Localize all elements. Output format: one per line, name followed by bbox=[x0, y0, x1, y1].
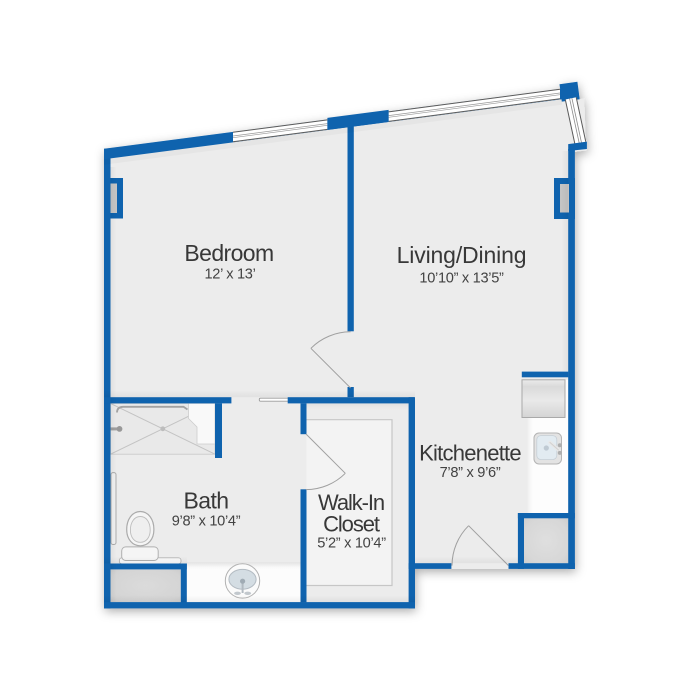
svg-text:Bedroom: Bedroom bbox=[184, 240, 273, 266]
svg-text:Bath: Bath bbox=[184, 488, 229, 514]
svg-text:12’ x 13’: 12’ x 13’ bbox=[204, 267, 255, 283]
svg-text:10’10” x 13’5”: 10’10” x 13’5” bbox=[419, 271, 504, 287]
svg-text:5’2” x 10’4”: 5’2” x 10’4” bbox=[317, 536, 386, 552]
svg-text:Kitchenette: Kitchenette bbox=[419, 441, 521, 466]
svg-text:7’8” x 9’6”: 7’8” x 9’6” bbox=[440, 465, 501, 481]
svg-text:9’8” x 10’4”: 9’8” x 10’4” bbox=[172, 514, 241, 530]
svg-text:Living/Dining: Living/Dining bbox=[397, 242, 527, 268]
svg-text:Closet: Closet bbox=[323, 512, 380, 537]
